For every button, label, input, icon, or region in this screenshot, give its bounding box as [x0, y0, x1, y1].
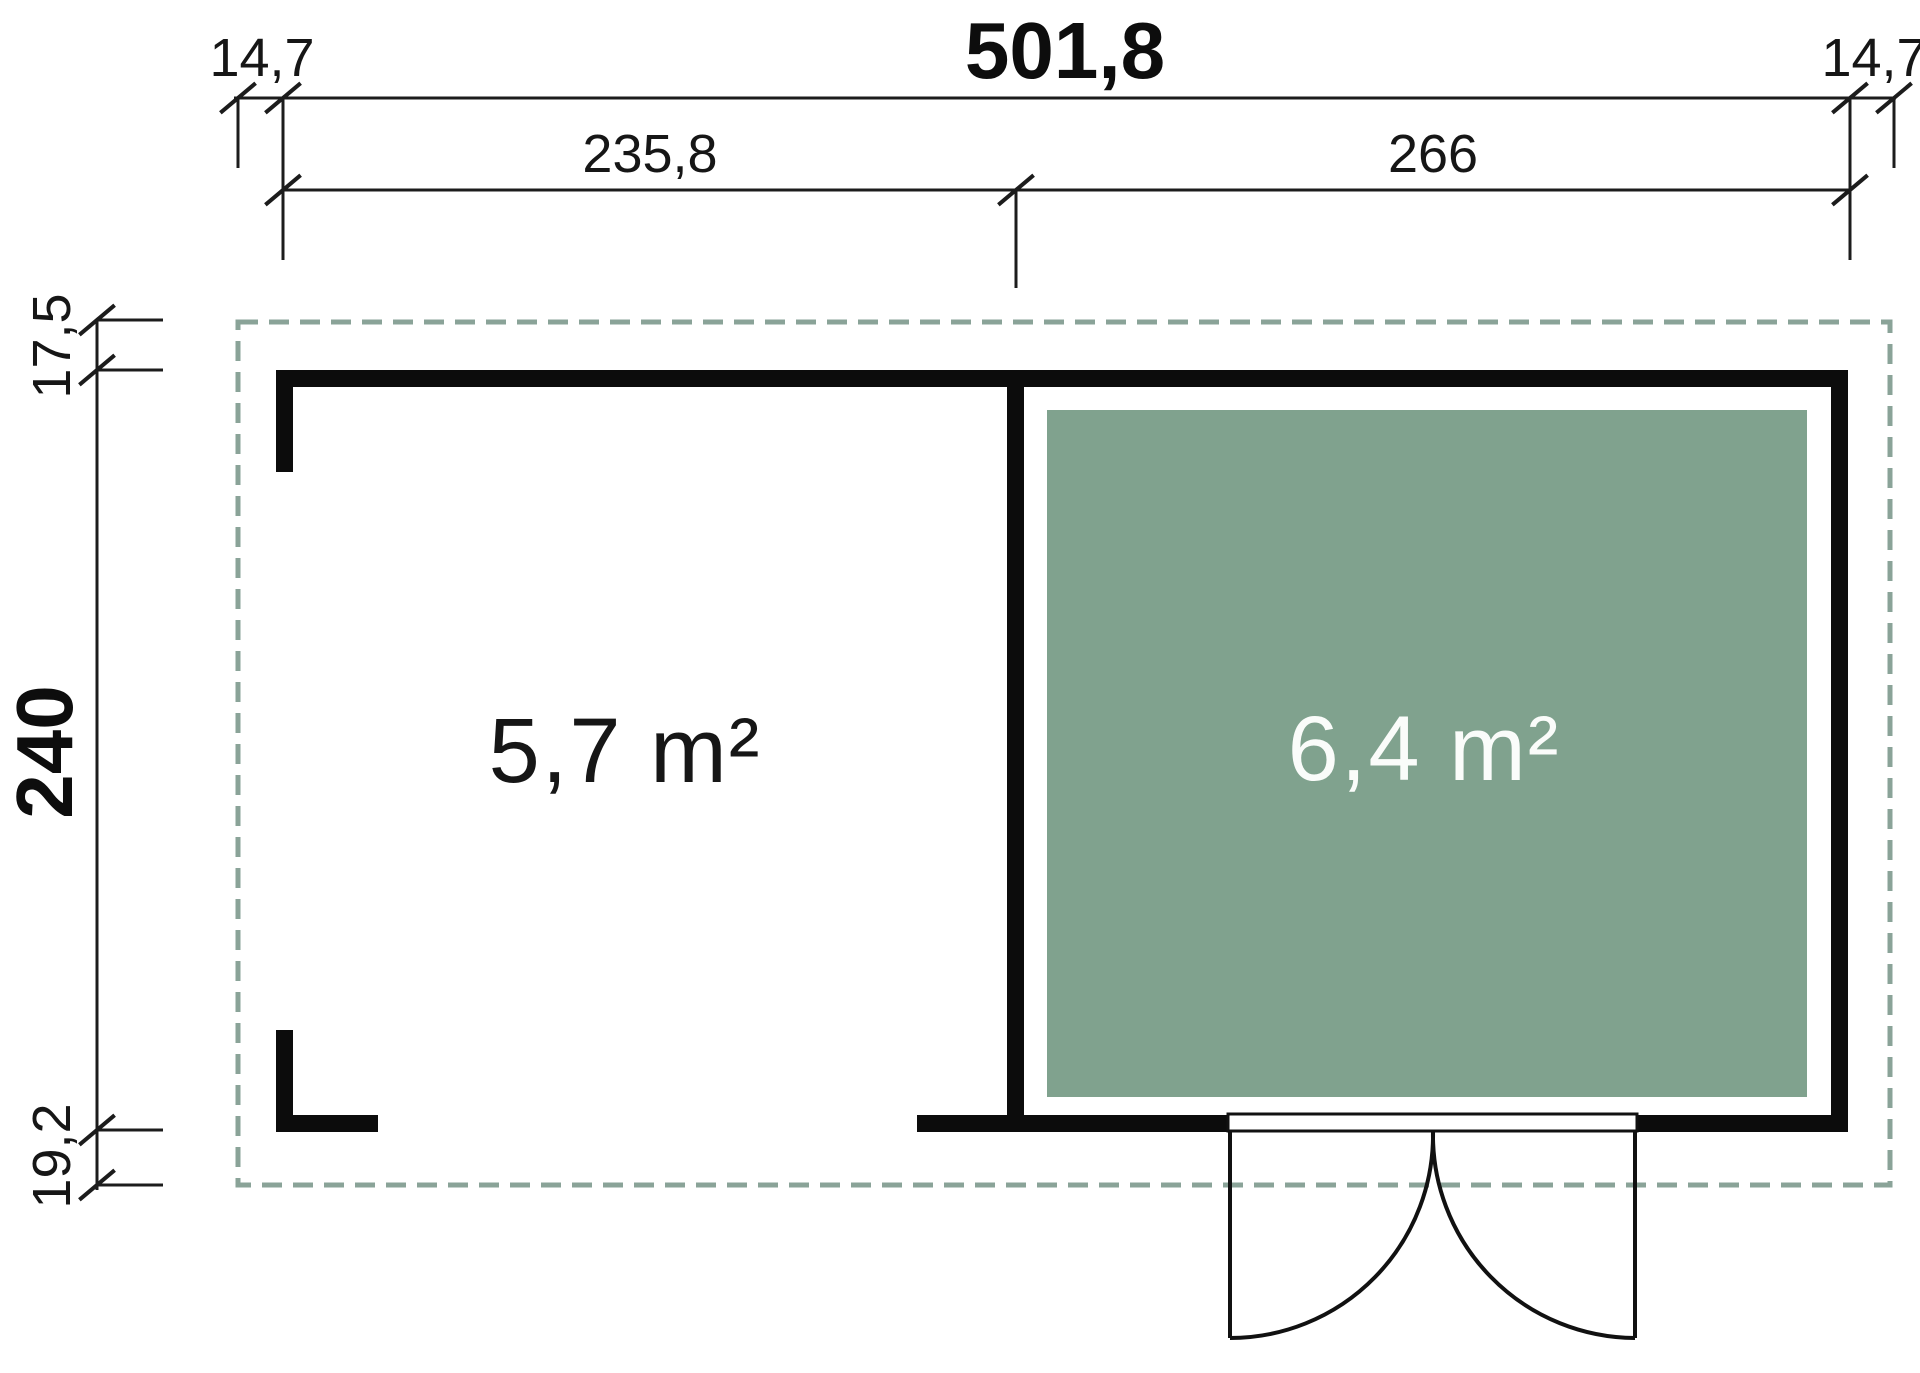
wall-bottom-middle: [917, 1115, 1228, 1132]
overhang-right-label: 14,7: [1821, 28, 1920, 88]
top-dimension-lines: [220, 83, 1911, 288]
overall-depth-label: 240: [0, 685, 89, 818]
door-threshold: [1228, 1114, 1637, 1131]
right-section-width-label: 266: [1388, 124, 1478, 184]
wall-bottom-left-corner-horizontal: [276, 1115, 378, 1132]
wall-top: [276, 370, 1848, 387]
wall-bottom-right: [1637, 1115, 1848, 1132]
cabin-area-label: 6,4 m²: [1288, 698, 1561, 800]
overhang-left-label: 14,7: [209, 28, 314, 88]
double-door: [1228, 1114, 1637, 1338]
wall-right: [1831, 370, 1848, 1132]
roof-overhang-top-label: 17,5: [22, 293, 82, 398]
floor-plan-page: 14,7 501,8 14,7 235,8 266 17,5 240 19,2 …: [0, 0, 1920, 1373]
floor-plan-drawing: 14,7 501,8 14,7 235,8 266 17,5 240 19,2 …: [0, 0, 1920, 1373]
roof-overhang-bottom-label: 19,2: [22, 1103, 82, 1208]
door-swing-right-arc: [1433, 1131, 1635, 1338]
canopy-area-label: 5,7 m²: [489, 700, 762, 802]
wall-top-left-stub: [276, 370, 293, 472]
wall-interior: [1007, 370, 1024, 1132]
left-section-width-label: 235,8: [582, 124, 717, 184]
left-dimension-lines: [79, 305, 163, 1200]
overall-width-label: 501,8: [965, 6, 1165, 95]
door-swing-left-arc: [1230, 1131, 1433, 1338]
